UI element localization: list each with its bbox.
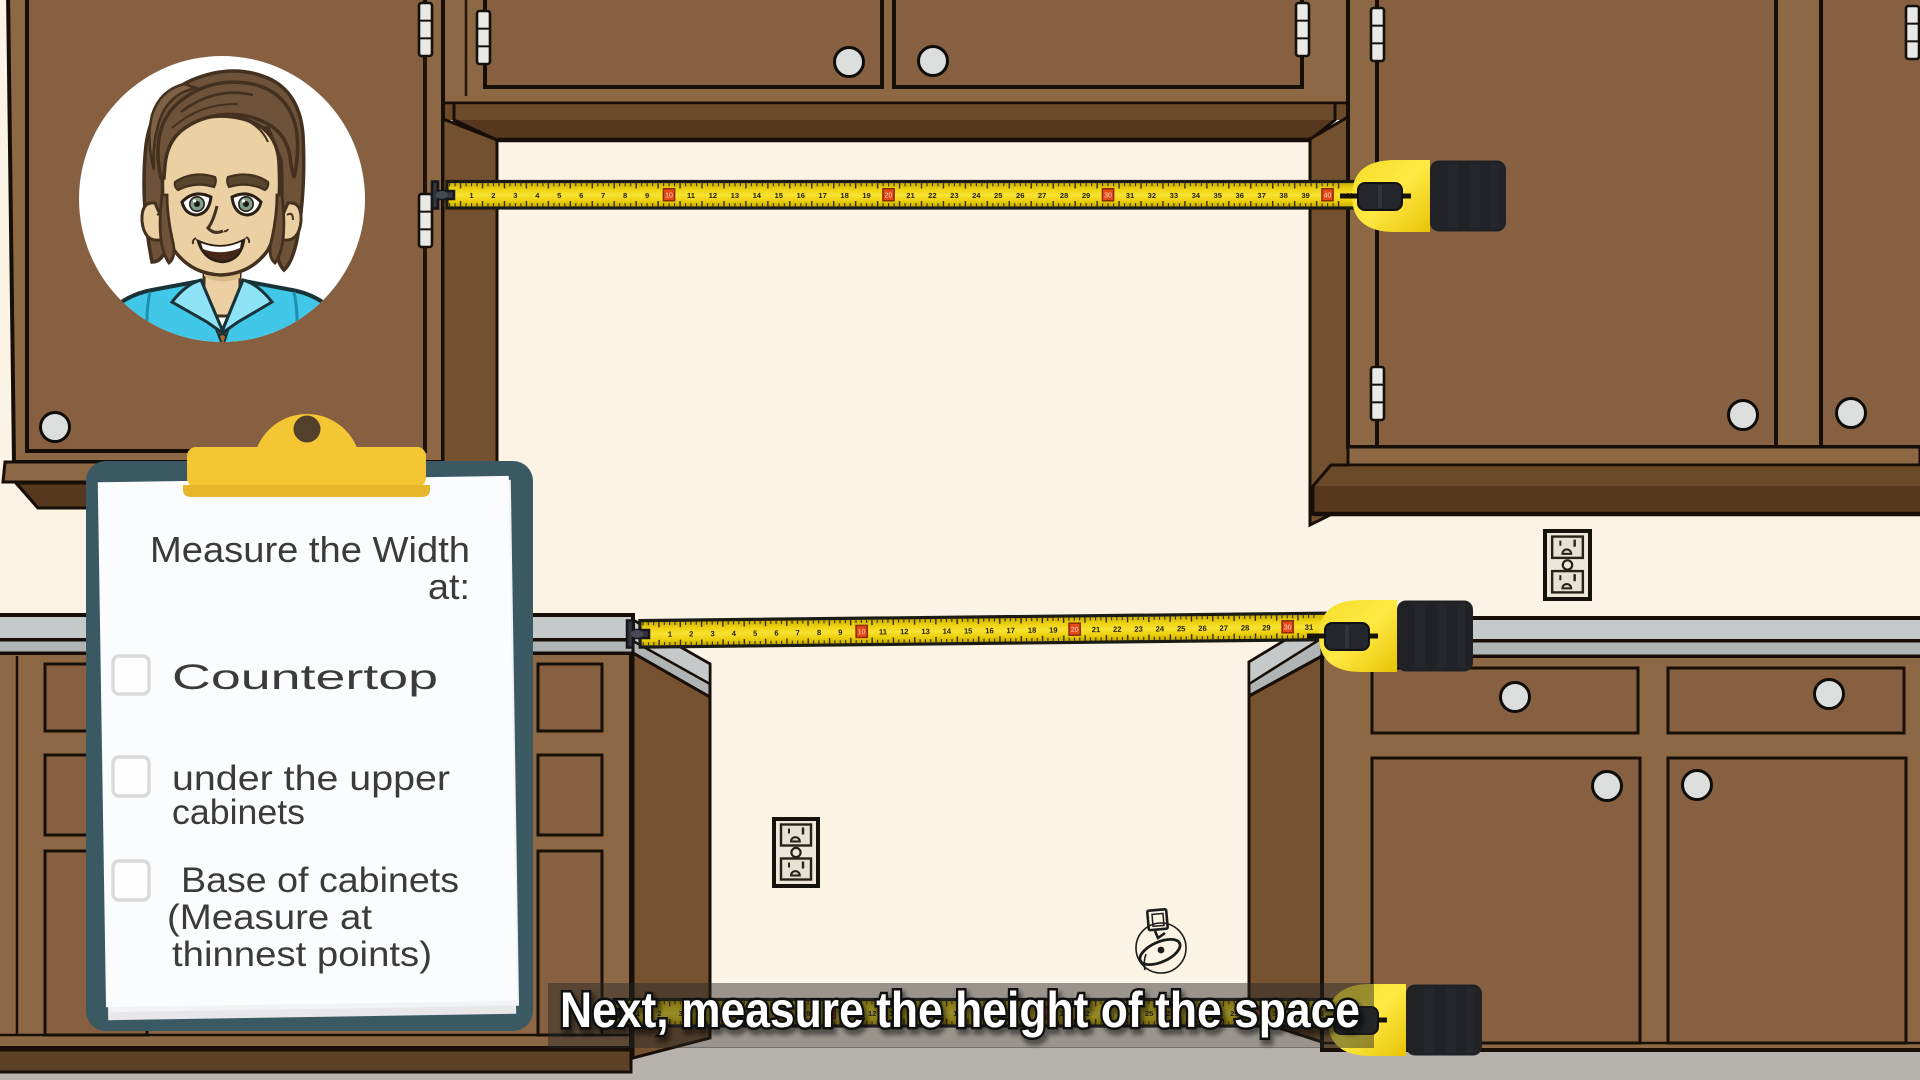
svg-text:Base of cabinets: Base of cabinets — [181, 861, 459, 900]
svg-text:8: 8 — [817, 628, 821, 637]
svg-text:40: 40 — [1324, 192, 1332, 199]
svg-text:21: 21 — [906, 191, 915, 200]
svg-text:13: 13 — [731, 191, 739, 200]
svg-text:15: 15 — [964, 626, 973, 635]
svg-text:21: 21 — [1092, 625, 1101, 634]
svg-text:25: 25 — [994, 191, 1003, 200]
svg-text:27: 27 — [1219, 624, 1228, 633]
svg-text:10: 10 — [665, 192, 673, 199]
svg-text:14: 14 — [943, 627, 952, 636]
svg-text:thinnest points): thinnest points) — [172, 935, 432, 974]
svg-text:Next, measure the height of th: Next, measure the height of the space — [560, 982, 1360, 1038]
svg-text:24: 24 — [1156, 624, 1165, 633]
svg-text:31: 31 — [1126, 191, 1135, 200]
svg-text:23: 23 — [1134, 625, 1143, 634]
svg-text:11: 11 — [879, 627, 888, 636]
svg-text:Measure the Width: Measure the Width — [150, 529, 470, 570]
svg-text:26: 26 — [1016, 191, 1024, 200]
svg-text:15: 15 — [775, 191, 784, 200]
svg-text:19: 19 — [862, 191, 870, 200]
svg-text:20: 20 — [1071, 627, 1079, 634]
svg-text:24: 24 — [972, 191, 981, 200]
svg-text:22: 22 — [928, 191, 936, 200]
svg-text:28: 28 — [1060, 191, 1068, 200]
svg-text:30: 30 — [1284, 624, 1292, 631]
svg-text:29: 29 — [1082, 191, 1090, 200]
svg-text:Countertop: Countertop — [172, 658, 438, 697]
svg-text:36: 36 — [1235, 191, 1243, 200]
svg-text:27: 27 — [1038, 191, 1046, 200]
svg-text:38: 38 — [1279, 191, 1287, 200]
svg-text:7: 7 — [796, 628, 800, 637]
svg-text:22: 22 — [1113, 625, 1122, 634]
svg-text:34: 34 — [1192, 191, 1201, 200]
svg-text:25: 25 — [1177, 624, 1186, 633]
svg-text:8: 8 — [623, 191, 627, 200]
svg-text:23: 23 — [950, 191, 958, 200]
svg-text:3: 3 — [710, 629, 714, 638]
svg-text:39: 39 — [1301, 191, 1309, 200]
svg-text:7: 7 — [601, 191, 605, 200]
svg-text:12: 12 — [709, 191, 717, 200]
svg-text:17: 17 — [1006, 626, 1015, 635]
svg-text:13: 13 — [921, 627, 930, 636]
svg-text:31: 31 — [1305, 623, 1314, 632]
svg-text:(Measure at: (Measure at — [167, 898, 372, 937]
svg-text:17: 17 — [818, 191, 826, 200]
svg-text:18: 18 — [1028, 626, 1037, 635]
svg-text:9: 9 — [838, 628, 842, 637]
svg-text:14: 14 — [753, 191, 762, 200]
svg-text:35: 35 — [1214, 191, 1223, 200]
svg-text:19: 19 — [1049, 626, 1058, 635]
svg-text:2: 2 — [491, 191, 495, 200]
svg-text:10: 10 — [858, 629, 866, 636]
svg-text:3: 3 — [513, 191, 517, 200]
svg-text:2: 2 — [689, 629, 693, 638]
svg-text:26: 26 — [1198, 624, 1207, 633]
svg-text:12: 12 — [900, 627, 909, 636]
svg-text:at:: at: — [428, 566, 470, 607]
svg-text:11: 11 — [687, 191, 696, 200]
svg-text:16: 16 — [985, 626, 994, 635]
svg-text:6: 6 — [774, 629, 778, 638]
svg-text:16: 16 — [796, 191, 804, 200]
svg-text:32: 32 — [1148, 191, 1156, 200]
svg-text:6: 6 — [579, 191, 583, 200]
svg-text:28: 28 — [1241, 623, 1250, 632]
svg-text:33: 33 — [1170, 191, 1178, 200]
svg-text:20: 20 — [885, 192, 893, 199]
svg-text:37: 37 — [1257, 191, 1265, 200]
svg-text:29: 29 — [1262, 623, 1271, 632]
svg-text:9: 9 — [645, 191, 649, 200]
svg-text:30: 30 — [1104, 192, 1112, 199]
svg-text:cabinets: cabinets — [172, 793, 305, 832]
svg-text:18: 18 — [840, 191, 848, 200]
